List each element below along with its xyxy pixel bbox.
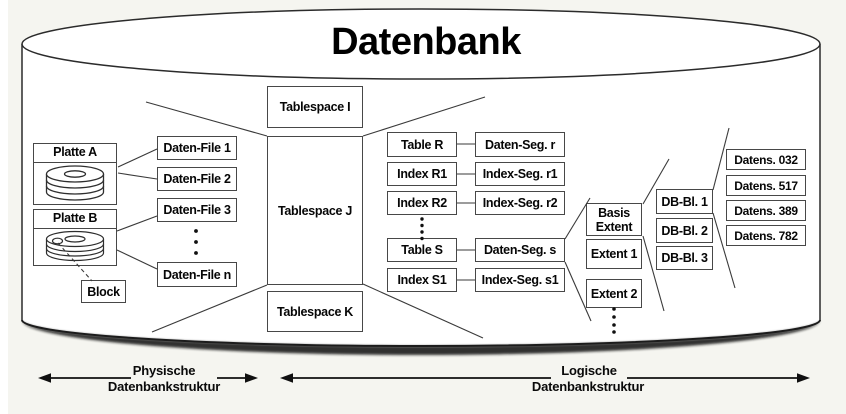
disk-platte-b: Platte B: [33, 209, 117, 266]
legend-logical-line1: Logische: [519, 363, 659, 378]
box-daten-seg-r: Daten-Seg. r: [475, 132, 565, 157]
box-tablespace-k: Tablespace K: [267, 291, 363, 332]
box-datensatz-517: Datens. 517: [726, 175, 806, 196]
box-db-block-1: DB-Bl. 1: [656, 189, 713, 214]
box-daten-file-1: Daten-File 1: [157, 136, 237, 160]
box-extent-2: Extent 2: [586, 279, 642, 308]
box-block: Block: [81, 280, 126, 303]
database-title: Datenbank: [276, 21, 576, 64]
box-extent-1: Extent 1: [586, 239, 642, 269]
box-table-s: Table S: [387, 238, 457, 262]
legend-physical-line2: Datenbankstruktur: [83, 379, 245, 394]
platte-a-label: Platte A: [34, 144, 116, 163]
legend-physical-line1: Physische: [94, 363, 234, 378]
disk-icon: [34, 229, 116, 265]
box-index-r2: Index R2: [387, 191, 457, 215]
box-index-seg-s1: Index-Seg. s1: [475, 268, 565, 292]
box-table-r: Table R: [387, 132, 457, 157]
box-index-seg-r2: Index-Seg. r2: [475, 191, 565, 215]
box-index-r1: Index R1: [387, 162, 457, 186]
box-index-seg-r1: Index-Seg. r1: [475, 162, 565, 186]
disk-icon: [34, 163, 116, 204]
box-daten-file-2: Daten-File 2: [157, 167, 237, 191]
platte-b-label: Platte B: [34, 210, 116, 229]
legend-logical-line2: Datenbankstruktur: [507, 379, 669, 394]
database-structure-diagram: Datenbank Platte A Platte B: [0, 0, 846, 414]
basis-extent-line1: Basis: [598, 206, 630, 220]
block-marker: [53, 238, 63, 244]
box-daten-seg-s: Daten-Seg. s: [475, 238, 565, 262]
box-db-block-3: DB-Bl. 3: [656, 246, 713, 270]
disk-platte-a: Platte A: [33, 143, 117, 205]
basis-extent-line2: Extent: [596, 220, 632, 234]
box-db-block-2: DB-Bl. 2: [656, 218, 713, 243]
window-edge: [0, 0, 8, 414]
box-datensatz-389: Datens. 389: [726, 200, 806, 221]
box-datensatz-032: Datens. 032: [726, 149, 806, 170]
box-index-s1: Index S1: [387, 268, 457, 292]
box-tablespace-i: Tablespace I: [267, 86, 363, 128]
box-datensatz-782: Datens. 782: [726, 225, 806, 246]
box-daten-file-n: Daten-File n: [157, 262, 237, 287]
box-basis-extent: Basis Extent: [586, 203, 642, 236]
box-tablespace-j: Tablespace J: [267, 136, 363, 285]
box-daten-file-3: Daten-File 3: [157, 198, 237, 222]
